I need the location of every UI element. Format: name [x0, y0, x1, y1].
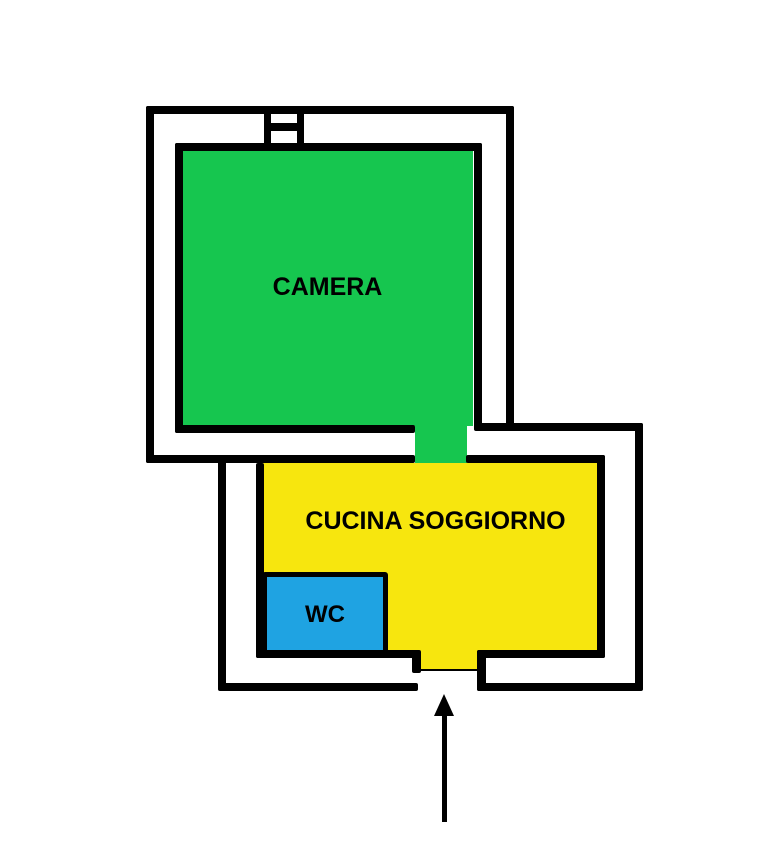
cucina-outer-wall-bottom-right [477, 683, 643, 691]
camera-inner-wall-bottom [175, 425, 415, 433]
cucina-outer-wall-left [218, 456, 226, 690]
window-symbol-crossbar [264, 123, 304, 131]
camera-outer-wall-right [506, 106, 514, 430]
cucina-inner-wall-right [597, 455, 605, 658]
cucina-outer-wall-right [635, 423, 643, 690]
cucina-inner-wall-bottom-right [477, 650, 605, 658]
room-wc-label: WC [267, 601, 383, 629]
entrance-doorway-fill [421, 651, 478, 670]
doorway-camera-to-cucina [415, 424, 467, 464]
camera-outer-wall-bottom [146, 455, 415, 463]
camera-inner-wall-top [175, 143, 482, 151]
cucina-outer-wall-bottom-left [218, 683, 418, 691]
room-camera-label: CAMERA [182, 273, 473, 302]
floor-plan: CAMERA CUCINA SOGGIORNO WC [0, 0, 769, 845]
camera-inner-wall-right [474, 143, 482, 430]
entrance-arrow-shaft [442, 712, 447, 822]
entrance-door-threshold [418, 669, 480, 671]
room-cucina-soggiorno-label: CUCINA SOGGIORNO [263, 507, 608, 536]
cucina-inner-wall-left [256, 463, 264, 658]
cucina-inner-wall-bottom-left [256, 650, 420, 658]
camera-outer-wall-left [146, 106, 154, 463]
cucina-outer-wall-top-right [474, 423, 643, 431]
cucina-inner-wall-top-right [466, 455, 605, 463]
camera-outer-wall-top [146, 106, 514, 114]
